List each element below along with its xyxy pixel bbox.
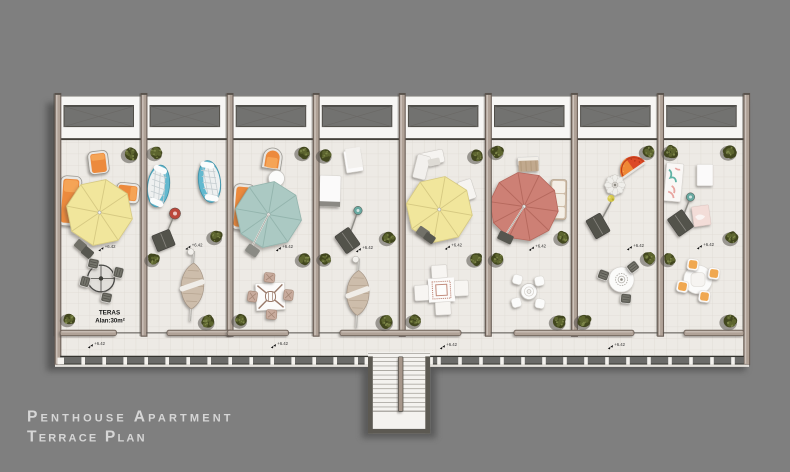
svg-text:+6.42: +6.42 [446,342,457,347]
svg-text:Penthouse Apartment: Penthouse Apartment [27,409,234,426]
svg-text:Alan:30m²: Alan:30m² [95,318,124,325]
svg-text:+6.42: +6.42 [94,341,105,346]
svg-text:+6.42: +6.42 [105,244,116,249]
svg-text:TERAS: TERAS [99,310,120,317]
svg-text:Terrace Plan: Terrace Plan [27,429,147,446]
svg-text:+6.42: +6.42 [451,243,462,248]
svg-text:+6.42: +6.42 [535,244,546,249]
svg-text:+6.42: +6.42 [362,245,373,250]
svg-text:+6.42: +6.42 [282,244,293,249]
svg-text:+6.42: +6.42 [614,342,625,347]
svg-text:+6.42: +6.42 [192,243,203,248]
svg-text:+6.42: +6.42 [633,243,644,248]
svg-text:+6.42: +6.42 [703,242,714,247]
svg-text:+6.42: +6.42 [277,341,288,346]
